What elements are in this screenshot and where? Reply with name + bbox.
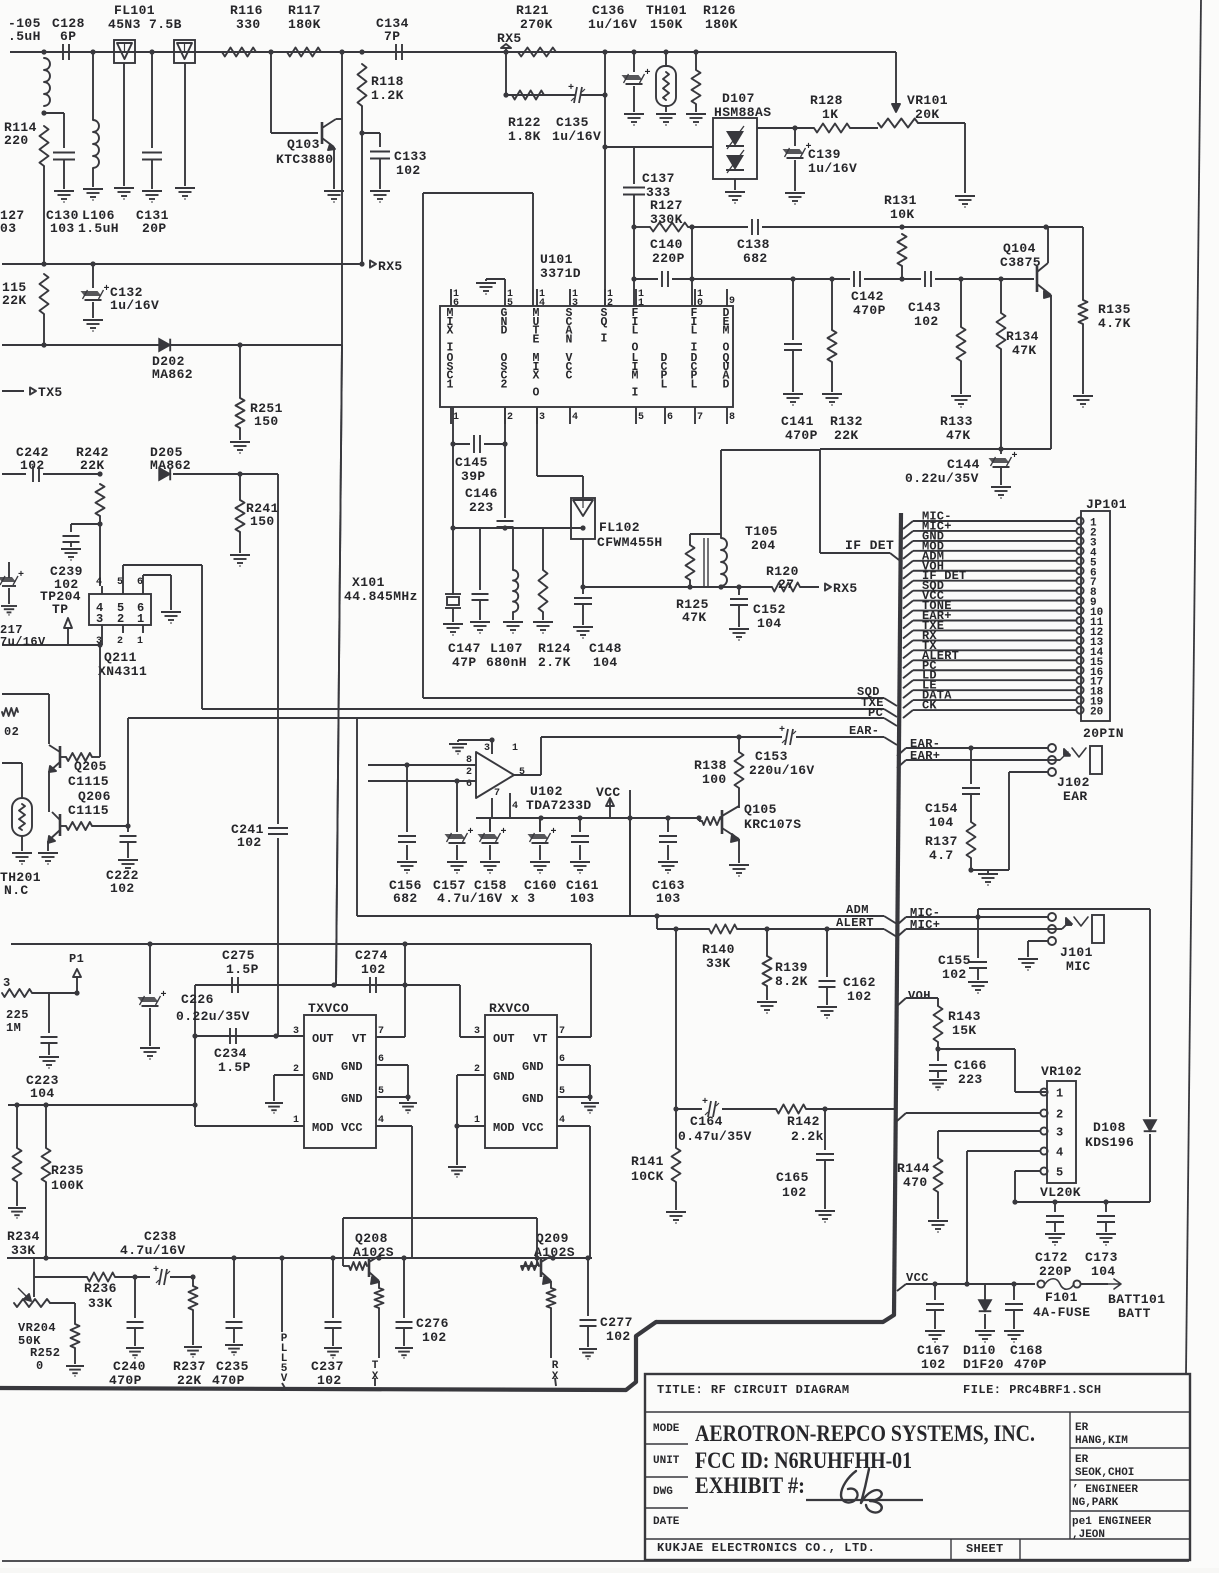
svg-text:220P: 220P [652, 251, 685, 266]
svg-text:L: L [691, 378, 698, 391]
svg-text:C237: C237 [311, 1359, 344, 1374]
svg-text:2: 2 [501, 378, 508, 391]
svg-text:100: 100 [702, 772, 727, 787]
svg-text:223: 223 [469, 500, 494, 515]
svg-text:150: 150 [250, 514, 275, 529]
svg-text:L: L [661, 378, 668, 391]
svg-text:HANG,KIM: HANG,KIM [1075, 1435, 1128, 1447]
svg-text:FL101: FL101 [114, 3, 155, 18]
svg-text:3: 3 [484, 743, 490, 754]
svg-text:TXVCO: TXVCO [308, 1001, 349, 1016]
svg-text:2: 2 [117, 612, 124, 626]
svg-text:SHEET: SHEET [966, 1542, 1004, 1556]
svg-text:1: 1 [1056, 1087, 1063, 1101]
svg-text:EAR-: EAR- [849, 724, 879, 738]
svg-text:4: 4 [559, 1115, 565, 1126]
svg-text:R131: R131 [884, 193, 917, 208]
svg-text:150K: 150K [650, 17, 683, 32]
svg-text:330K: 330K [650, 212, 683, 227]
svg-text:7P: 7P [384, 29, 400, 44]
svg-text:D1F20: D1F20 [963, 1357, 1004, 1372]
svg-text:C235: C235 [216, 1359, 249, 1374]
svg-text:KTC3880: KTC3880 [276, 152, 333, 167]
svg-text:22K: 22K [834, 428, 859, 443]
svg-text:5: 5 [1056, 1166, 1063, 1180]
svg-text:KDS196: KDS196 [1085, 1135, 1134, 1150]
svg-text:C1115: C1115 [68, 803, 109, 818]
svg-text:F101: F101 [1045, 1290, 1078, 1305]
svg-text:1u/16V: 1u/16V [110, 298, 159, 313]
svg-text:102: 102 [317, 1373, 342, 1388]
svg-text:C173: C173 [1085, 1250, 1118, 1265]
svg-text:3: 3 [474, 1026, 480, 1037]
svg-text:20: 20 [1090, 707, 1103, 719]
svg-text:TDA7233D: TDA7233D [526, 798, 592, 813]
svg-text:R127: R127 [650, 198, 683, 213]
svg-text:+: + [551, 827, 557, 838]
svg-text:1u/16V: 1u/16V [808, 161, 857, 176]
svg-text:4: 4 [378, 1115, 384, 1126]
svg-text:N: N [566, 333, 573, 346]
svg-text:2: 2 [466, 767, 472, 778]
svg-text:C146: C146 [465, 486, 498, 501]
svg-text:D: D [501, 325, 508, 338]
svg-text:1: 1 [474, 1115, 480, 1126]
svg-text:VR101: VR101 [907, 93, 948, 108]
svg-text:150: 150 [254, 414, 279, 429]
svg-text:R141: R141 [631, 1154, 664, 1169]
svg-text:180K: 180K [288, 17, 321, 32]
svg-text:VR204: VR204 [18, 1321, 56, 1335]
svg-text:5: 5 [378, 1086, 384, 1097]
svg-text:20PIN: 20PIN [1083, 726, 1124, 741]
svg-text:33K: 33K [706, 956, 731, 971]
svg-text:C165: C165 [776, 1170, 809, 1185]
svg-text:0.22u/35V: 0.22u/35V [176, 1009, 250, 1024]
svg-text:4.7K: 4.7K [1098, 316, 1131, 331]
svg-text:+: + [18, 570, 24, 581]
svg-text:22K: 22K [177, 1373, 202, 1388]
svg-text:44.845MHz: 44.845MHz [344, 589, 418, 604]
svg-text:D108: D108 [1093, 1120, 1126, 1135]
svg-text:2: 2 [474, 1064, 480, 1075]
svg-text:1M: 1M [6, 1021, 21, 1035]
svg-text:Q206: Q206 [78, 789, 111, 804]
svg-text:6P: 6P [60, 29, 76, 44]
svg-text:R252: R252 [30, 1346, 60, 1360]
svg-text:L107: L107 [490, 641, 523, 656]
svg-text:M: M [632, 370, 639, 383]
svg-text:104: 104 [593, 655, 618, 670]
svg-text:C240: C240 [113, 1359, 146, 1374]
svg-text:47K: 47K [682, 610, 707, 625]
svg-text:680nH: 680nH [486, 655, 527, 670]
svg-text:15K: 15K [952, 1023, 977, 1038]
svg-text:3: 3 [539, 412, 545, 423]
svg-text:OUT: OUT [493, 1032, 515, 1046]
svg-text:4A-FUSE: 4A-FUSE [1033, 1305, 1090, 1320]
svg-text:+: + [568, 83, 574, 94]
svg-text:Q105: Q105 [744, 802, 777, 817]
svg-text:102: 102 [606, 1329, 631, 1344]
svg-text:470: 470 [903, 1175, 928, 1190]
svg-text:R137: R137 [925, 834, 958, 849]
svg-text:102: 102 [942, 967, 967, 982]
svg-text:C226: C226 [181, 992, 214, 1007]
svg-text:1.8K: 1.8K [508, 129, 541, 144]
svg-text:5: 5 [638, 412, 644, 423]
svg-text:GND: GND [341, 1060, 363, 1074]
svg-text:1.5uH: 1.5uH [78, 221, 119, 236]
svg-text:0.22u/35V: 0.22u/35V [905, 471, 979, 486]
svg-text:C138: C138 [737, 237, 770, 252]
svg-text:102: 102 [847, 989, 872, 1004]
svg-text:5: 5 [507, 298, 513, 309]
svg-text:IF DET: IF DET [845, 538, 894, 553]
svg-text:MIC: MIC [1066, 959, 1091, 974]
svg-text:470P: 470P [1014, 1357, 1047, 1372]
svg-text:1: 1 [137, 636, 143, 647]
svg-text:VCC: VCC [596, 785, 621, 800]
svg-text:102: 102 [110, 881, 135, 896]
svg-text:+: + [645, 68, 651, 79]
svg-text:7: 7 [378, 1026, 384, 1037]
svg-text:FILE: PRC4BRF1.SCH: FILE: PRC4BRF1.SCH [963, 1383, 1102, 1397]
svg-text:C1115: C1115 [68, 774, 109, 789]
svg-text:C277: C277 [600, 1315, 633, 1330]
svg-text:VL20K: VL20K [1040, 1185, 1081, 1200]
svg-text:102: 102 [782, 1185, 807, 1200]
svg-text:470P: 470P [785, 428, 818, 443]
svg-text:1: 1 [638, 298, 644, 309]
svg-text:DWG: DWG [653, 1486, 673, 1498]
svg-text:J101: J101 [1060, 945, 1093, 960]
svg-text:VR102: VR102 [1041, 1064, 1082, 1079]
svg-text:R143: R143 [948, 1009, 981, 1024]
svg-text:C164: C164 [690, 1114, 723, 1129]
svg-text:RXVCO: RXVCO [489, 1001, 530, 1016]
svg-text:R134: R134 [1006, 329, 1039, 344]
svg-text:RX5: RX5 [378, 259, 403, 274]
svg-text:2.2k: 2.2k [791, 1129, 824, 1144]
svg-text:TX5: TX5 [38, 385, 63, 400]
svg-text:6: 6 [667, 412, 673, 423]
svg-text:C147: C147 [448, 641, 481, 656]
svg-text:C275: C275 [222, 948, 255, 963]
svg-text:1u/16V: 1u/16V [552, 129, 601, 144]
svg-text:JP101: JP101 [1086, 497, 1127, 512]
svg-text:1.5P: 1.5P [218, 1060, 251, 1075]
svg-text:20P: 20P [142, 221, 167, 236]
svg-text:FL102: FL102 [599, 520, 640, 535]
svg-text:100K: 100K [51, 1178, 84, 1193]
svg-text:8: 8 [729, 412, 735, 423]
svg-text:33K: 33K [11, 1243, 36, 1258]
svg-text:682: 682 [393, 891, 418, 906]
svg-text:,JEON: ,JEON [1072, 1529, 1105, 1541]
svg-text:VCC: VCC [522, 1121, 544, 1135]
svg-text:R237: R237 [173, 1359, 206, 1374]
svg-text:ER: ER [1075, 1454, 1089, 1466]
svg-text:+: + [104, 284, 110, 295]
svg-text:470P: 470P [853, 303, 886, 318]
svg-text:C137: C137 [642, 171, 675, 186]
svg-text:104: 104 [1091, 1264, 1116, 1279]
svg-text:C133: C133 [394, 149, 427, 164]
svg-text:682: 682 [743, 251, 768, 266]
svg-text:L: L [632, 325, 639, 338]
svg-text:CFWM455H: CFWM455H [597, 535, 663, 550]
svg-text:Q: Q [601, 316, 608, 329]
svg-text:3: 3 [572, 298, 578, 309]
svg-text:10CK: 10CK [631, 1169, 664, 1184]
svg-text:39P: 39P [461, 469, 486, 484]
svg-text:5: 5 [519, 767, 525, 778]
svg-text:20K: 20K [915, 107, 940, 122]
svg-text:GND: GND [312, 1070, 334, 1084]
svg-text:4: 4 [572, 412, 578, 423]
svg-text:C276: C276 [416, 1316, 449, 1331]
svg-text:220P: 220P [1039, 1264, 1072, 1279]
svg-text:R144: R144 [897, 1161, 930, 1176]
svg-text:MOD: MOD [312, 1121, 334, 1135]
svg-text:470P: 470P [212, 1373, 245, 1388]
svg-text:R236: R236 [84, 1281, 117, 1296]
svg-text:47K: 47K [1012, 343, 1037, 358]
svg-text:VT: VT [533, 1032, 547, 1046]
svg-text:NG,PARK: NG,PARK [1072, 1497, 1119, 1509]
svg-text:U101: U101 [540, 252, 573, 267]
svg-text:KUKJAE ELECTRONICS CO., LTD.: KUKJAE ELECTRONICS CO., LTD. [657, 1541, 875, 1555]
svg-text:2: 2 [1056, 1108, 1063, 1122]
svg-text:6: 6 [453, 298, 459, 309]
svg-text:102: 102 [422, 1330, 447, 1345]
svg-text:D107: D107 [722, 91, 755, 106]
svg-text:2: 2 [607, 298, 613, 309]
svg-text:ADM: ADM [846, 903, 869, 917]
svg-text:2: 2 [507, 412, 513, 423]
svg-text:X: X [533, 370, 540, 383]
svg-text:TITLE: RF CIRCUIT DIAGRAM: TITLE: RF CIRCUIT DIAGRAM [657, 1383, 850, 1397]
svg-text:EAR: EAR [1063, 789, 1088, 804]
svg-text:Q104: Q104 [1003, 241, 1036, 256]
svg-text:1: 1 [512, 743, 518, 754]
svg-text:104: 104 [929, 815, 954, 830]
svg-text:T105: T105 [745, 524, 778, 539]
svg-text:R139: R139 [775, 960, 808, 975]
svg-text:225: 225 [6, 1008, 29, 1022]
svg-text:XN4311: XN4311 [98, 664, 147, 679]
svg-text:VCC: VCC [341, 1121, 363, 1135]
svg-text:R124: R124 [538, 641, 571, 656]
svg-text:GND: GND [522, 1092, 544, 1106]
svg-text:C167: C167 [917, 1343, 950, 1358]
svg-text:22K: 22K [2, 293, 27, 308]
svg-text:C: C [566, 370, 573, 383]
svg-text:4.7: 4.7 [929, 848, 954, 863]
svg-text:223: 223 [958, 1072, 983, 1087]
svg-text:MODE: MODE [653, 1423, 680, 1435]
svg-text:R132: R132 [830, 414, 863, 429]
svg-text:R121: R121 [516, 3, 549, 18]
svg-text:0.47u/35V: 0.47u/35V [678, 1129, 752, 1144]
svg-text:10K: 10K [890, 207, 915, 222]
svg-text:Q205: Q205 [74, 759, 107, 774]
svg-text:TH101: TH101 [646, 3, 687, 18]
svg-text:A102S: A102S [353, 1245, 394, 1260]
svg-text:1.2K: 1.2K [371, 88, 404, 103]
svg-text:AEROTRON-REPCO SYSTEMS, INC.: AEROTRON-REPCO SYSTEMS, INC. [695, 1421, 1035, 1446]
svg-text:R122: R122 [508, 115, 541, 130]
svg-text:33K: 33K [88, 1296, 113, 1311]
svg-text:VCC: VCC [906, 1271, 929, 1285]
svg-text:GND: GND [493, 1070, 515, 1084]
svg-text:SEOK,CHOI: SEOK,CHOI [1075, 1467, 1134, 1479]
svg-text:C152: C152 [753, 602, 786, 617]
svg-text:MA862: MA862 [152, 367, 193, 382]
svg-text:EXHIBIT #:: EXHIBIT #: [695, 1473, 805, 1498]
svg-text:R133: R133 [940, 414, 973, 429]
svg-text:Q103: Q103 [287, 137, 320, 152]
svg-text:R117: R117 [288, 3, 321, 18]
svg-text:RX5: RX5 [833, 581, 858, 596]
svg-text:C153: C153 [755, 749, 788, 764]
svg-text:102: 102 [237, 835, 262, 850]
svg-text:180K: 180K [705, 17, 738, 32]
svg-text:E: E [533, 333, 540, 346]
svg-text:1: 1 [293, 1115, 299, 1126]
svg-text:1.5P: 1.5P [226, 962, 259, 977]
svg-text:R138: R138 [694, 758, 727, 773]
svg-text:Q211: Q211 [104, 650, 137, 665]
svg-text:7: 7 [697, 412, 703, 423]
svg-text:0: 0 [697, 298, 703, 309]
svg-text:4.7u/16V: 4.7u/16V [120, 1243, 186, 1258]
svg-text:45N3 7.5B: 45N3 7.5B [108, 17, 182, 32]
svg-text:P1: P1 [69, 952, 84, 966]
svg-text:220u/16V: 220u/16V [749, 763, 815, 778]
svg-text:MOD: MOD [493, 1121, 515, 1135]
svg-text:47K: 47K [946, 428, 971, 443]
svg-text:I: I [632, 386, 639, 399]
svg-text:2: 2 [293, 1064, 299, 1075]
svg-text:103: 103 [656, 891, 681, 906]
svg-text:5: 5 [559, 1086, 565, 1097]
svg-text:C162: C162 [843, 975, 876, 990]
svg-text:104: 104 [757, 616, 782, 631]
svg-text:C143: C143 [908, 300, 941, 315]
svg-text:FCC ID: N6RUHFHH-01: FCC ID: N6RUHFHH-01 [695, 1448, 912, 1473]
svg-text:102: 102 [361, 962, 386, 977]
svg-text:1K: 1K [822, 107, 838, 122]
svg-text:M: M [723, 325, 730, 338]
svg-text:C142: C142 [851, 289, 884, 304]
svg-text:C160: C160 [524, 878, 557, 893]
svg-text:VT: VT [352, 1032, 366, 1046]
svg-text:CK: CK [922, 699, 937, 713]
svg-text:270K: 270K [520, 17, 553, 32]
svg-text:C136: C136 [592, 3, 625, 18]
svg-text:’ ENGINEER: ’ ENGINEER [1072, 1484, 1138, 1496]
svg-text:+: + [468, 827, 474, 838]
svg-text:103: 103 [50, 221, 75, 236]
svg-text:C3875: C3875 [1000, 255, 1041, 270]
svg-text:ER: ER [1075, 1422, 1089, 1434]
svg-text:330: 330 [236, 17, 261, 32]
svg-text:102: 102 [396, 163, 421, 178]
svg-text:KRC107S: KRC107S [744, 817, 801, 832]
svg-text:7: 7 [559, 1026, 565, 1037]
svg-text:4.7u/16V x 3: 4.7u/16V x 3 [437, 891, 535, 906]
svg-text:C140: C140 [650, 237, 683, 252]
svg-text:R142: R142 [787, 1114, 820, 1129]
svg-text:6: 6 [559, 1054, 565, 1065]
svg-text:02: 02 [4, 725, 19, 739]
svg-text:C144: C144 [947, 457, 980, 472]
svg-text:R126: R126 [703, 3, 736, 18]
svg-text:BATT: BATT [1118, 1306, 1151, 1321]
svg-text:1: 1 [137, 612, 144, 626]
svg-text:J102: J102 [1057, 775, 1090, 790]
svg-text:GND: GND [522, 1060, 544, 1074]
svg-text:8.2K: 8.2K [775, 974, 808, 989]
svg-text:+: + [702, 1097, 708, 1108]
svg-text:X101: X101 [352, 575, 385, 590]
svg-text:3: 3 [96, 612, 103, 626]
svg-text:N.C: N.C [4, 883, 29, 898]
svg-text:C154: C154 [925, 801, 958, 816]
svg-text:C274: C274 [355, 948, 388, 963]
svg-text:PC: PC [868, 706, 883, 720]
svg-text:3: 3 [1056, 1126, 1063, 1140]
svg-text:104: 104 [30, 1086, 55, 1101]
svg-text:R116: R116 [230, 3, 263, 18]
svg-text:7u/16V: 7u/16V [0, 635, 46, 649]
svg-text:D: D [723, 378, 730, 391]
svg-text:ALERT: ALERT [836, 916, 874, 930]
svg-text:U102: U102 [530, 784, 563, 799]
svg-text:204: 204 [751, 538, 776, 553]
svg-text:Q208: Q208 [355, 1231, 388, 1246]
svg-text:GND: GND [341, 1092, 363, 1106]
svg-text:4: 4 [1056, 1146, 1063, 1160]
svg-text:Q209: Q209 [536, 1231, 569, 1246]
svg-text:6: 6 [378, 1054, 384, 1065]
svg-text:+: + [501, 827, 507, 838]
svg-text:103: 103 [570, 891, 595, 906]
svg-text:0: 0 [36, 1359, 44, 1373]
svg-text:27: 27 [778, 577, 794, 592]
svg-text:R135: R135 [1098, 302, 1131, 317]
svg-text:pe1 ENGINEER: pe1 ENGINEER [1072, 1516, 1152, 1528]
svg-text:C155: C155 [938, 953, 971, 968]
svg-text:9: 9 [729, 296, 735, 307]
svg-text:4: 4 [539, 298, 545, 309]
svg-text:102: 102 [914, 314, 939, 329]
svg-text:.5uH: .5uH [8, 29, 41, 44]
svg-text:RX5: RX5 [497, 31, 522, 46]
svg-text:+: + [153, 1265, 159, 1276]
svg-text:C139: C139 [808, 147, 841, 162]
svg-text:+: + [1012, 451, 1018, 462]
svg-text:C172: C172 [1035, 1250, 1068, 1265]
svg-text:C145: C145 [455, 455, 488, 470]
svg-text:7: 7 [494, 788, 500, 799]
svg-text:22K: 22K [80, 458, 105, 473]
svg-text:I: I [601, 333, 608, 346]
svg-text:2: 2 [117, 636, 123, 647]
svg-text:C141: C141 [781, 414, 814, 429]
